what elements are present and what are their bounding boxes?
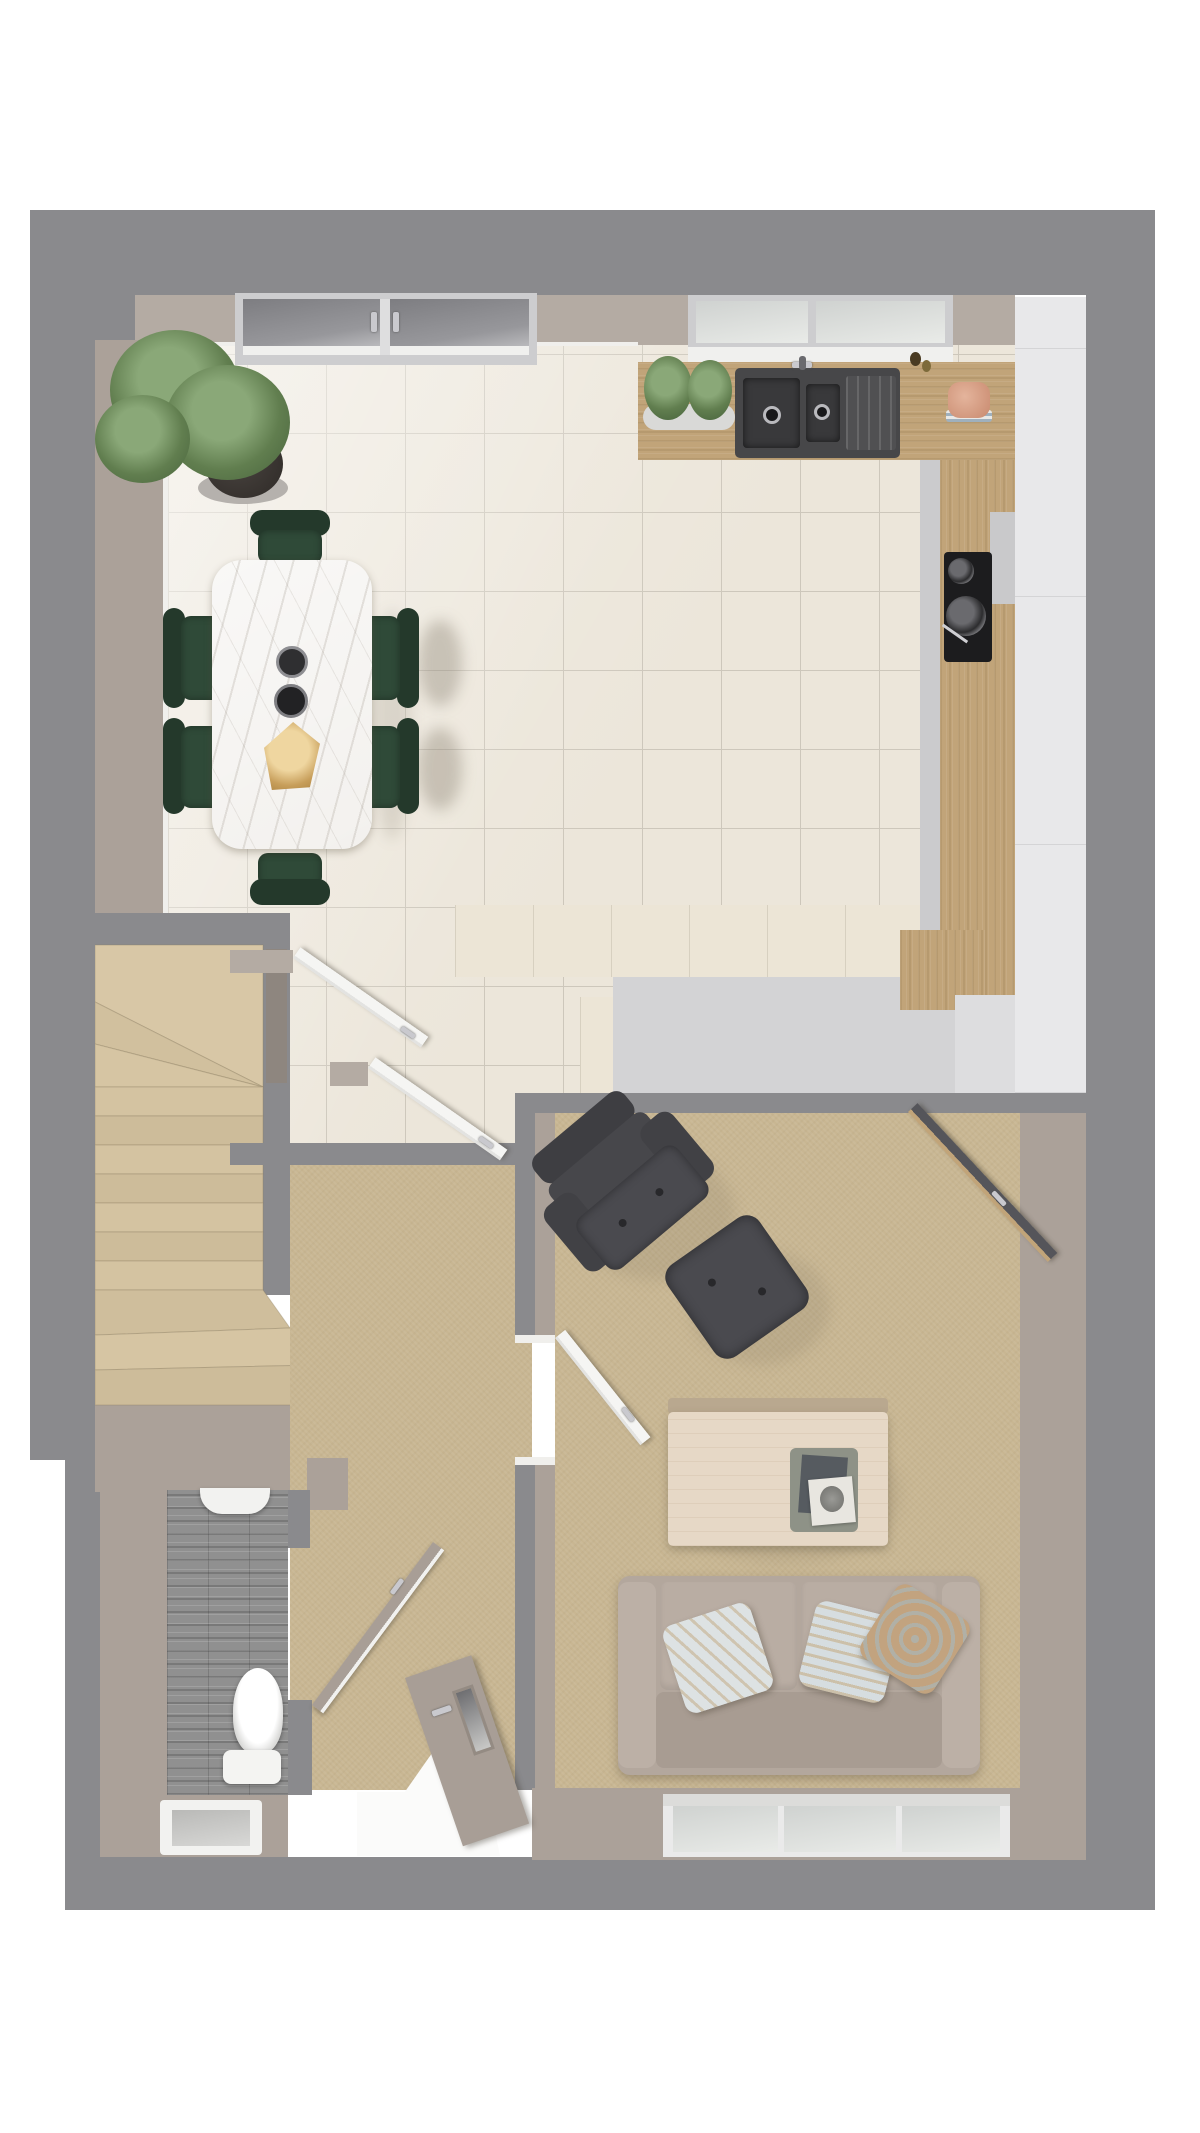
door-stub-2: [330, 1062, 368, 1086]
french-door-sill-left: [243, 346, 380, 355]
outer-wall-left: [30, 210, 95, 1460]
plant-foliage-3: [95, 395, 190, 483]
dining-chair-right2-back: [397, 718, 419, 814]
living-window-pane-1: [673, 1806, 778, 1852]
tall-units: [1015, 297, 1086, 1093]
wc-basin: [200, 1488, 270, 1514]
herb-plant-1: [644, 356, 692, 420]
living-window-pane-2: [784, 1806, 896, 1852]
outer-wall-top: [30, 210, 1155, 295]
living-window-sill: [663, 1794, 1010, 1806]
kitchen-window-glass-right: [816, 301, 945, 343]
base-cabinets-south: [455, 905, 920, 977]
extractor-panel: [990, 512, 1015, 604]
floorplan-canvas: [0, 0, 1200, 2133]
french-door-glass-left: [243, 299, 380, 346]
outer-wall-right: [1086, 210, 1155, 1910]
hall-west-stub: [307, 1458, 348, 1510]
kitchen-window-glass-left: [696, 301, 808, 343]
sink-drainer: [846, 376, 896, 450]
sink-drain-icon: [763, 406, 781, 424]
cabinet-end-panel: [580, 997, 613, 1093]
sink-tap-body-icon: [799, 356, 806, 370]
door-stub-1: [230, 950, 293, 973]
table-cup-2: [274, 684, 308, 718]
oil-bottle-1: [910, 352, 921, 366]
east-cabinet-fronts: [920, 460, 940, 930]
wc-east-wall-upper: [288, 1490, 310, 1548]
toilet-cistern: [223, 1750, 281, 1784]
ottoman-button-2: [756, 1286, 767, 1297]
living-door-jamb-bottom: [515, 1457, 555, 1465]
wc-west-wall-face: [100, 1460, 167, 1857]
french-door-handle-right-icon: [393, 312, 399, 332]
living-door-jamb-top: [515, 1335, 555, 1343]
oil-bottle-2: [922, 360, 931, 372]
worktop-corner-slab: [955, 995, 1015, 1093]
peach-bowl: [948, 382, 990, 418]
french-doors-mullion: [380, 299, 390, 355]
dining-chair-bottom-back: [250, 879, 330, 905]
dining-chair-right1-back: [397, 608, 419, 708]
sink-drain-icon-2: [814, 404, 830, 420]
french-door-handle-left-icon: [371, 312, 377, 332]
ottoman-button-1: [706, 1277, 717, 1288]
toilet-bowl: [233, 1668, 283, 1754]
french-door-sill-right: [390, 346, 529, 355]
wc-window-glass: [172, 1810, 250, 1846]
sofa-arm-left: [618, 1582, 656, 1768]
front-door-handle-icon: [431, 1705, 452, 1717]
hall-north-wall: [230, 1143, 555, 1165]
french-door-glass-right: [390, 299, 529, 346]
wc-east-wall-lower: [288, 1700, 312, 1795]
outer-wall-bottom: [65, 1857, 1155, 1910]
living-west-wall-lower: [515, 1465, 535, 1790]
table-cup-1: [276, 646, 308, 678]
herb-plant-2: [688, 360, 732, 420]
pan-small-icon: [948, 558, 974, 584]
dining-chair-top-seat: [258, 530, 322, 564]
outer-wall-left-lower: [65, 1460, 100, 1910]
living-window-pane-3: [902, 1806, 1000, 1852]
